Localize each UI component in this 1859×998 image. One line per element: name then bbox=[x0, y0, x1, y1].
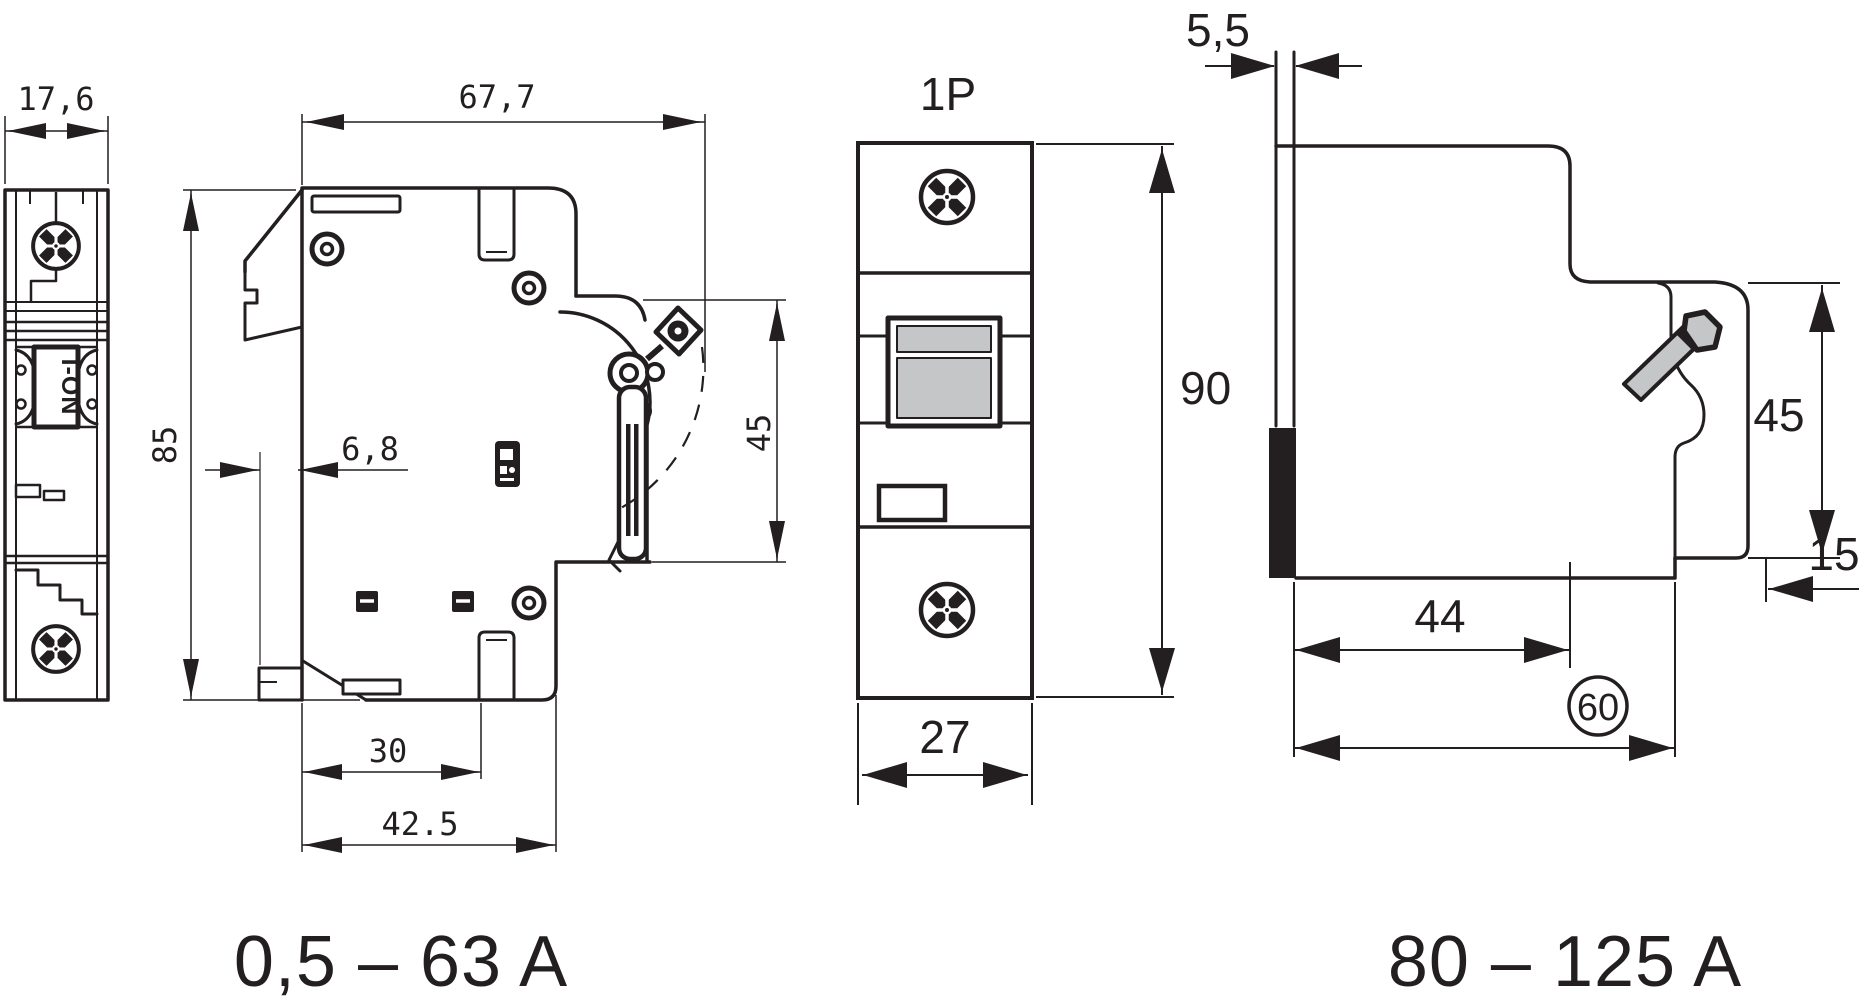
switch-label: I-ON bbox=[56, 359, 84, 416]
pole-count-label: 1P bbox=[920, 68, 976, 120]
rivet-icon bbox=[514, 588, 544, 618]
vent-holes bbox=[356, 591, 474, 612]
dim-label-42-5: 42.5 bbox=[381, 805, 458, 843]
dim-label-90: 90 bbox=[1180, 362, 1231, 414]
dim-label-27: 27 bbox=[919, 711, 970, 763]
bottom-slot bbox=[343, 680, 400, 694]
rating-window bbox=[879, 486, 945, 520]
phillips-screw-icon bbox=[33, 626, 79, 672]
dimension-front-height-45-large: 45 bbox=[1748, 283, 1840, 558]
toggle-mechanism bbox=[609, 308, 703, 571]
lever-shaft bbox=[619, 387, 646, 559]
din-clip-black bbox=[1269, 428, 1296, 578]
dim-label-85: 85 bbox=[146, 426, 184, 465]
dim-label-5-5: 5,5 bbox=[1186, 4, 1250, 56]
mcb-dimension-diagram: 17,6 I-ON bbox=[0, 0, 1859, 998]
dimension-height-90: 90 bbox=[1036, 144, 1231, 697]
dim-label-67-7: 67,7 bbox=[458, 78, 535, 116]
dim-label-15: 15 bbox=[1808, 528, 1859, 580]
din-rail-tab bbox=[1276, 52, 1294, 426]
din-hook-top bbox=[245, 272, 302, 340]
dim-label-30: 30 bbox=[369, 732, 408, 770]
dimension-width-27: 27 bbox=[858, 703, 1032, 805]
rivet-icon bbox=[514, 273, 544, 303]
current-range-large: 80 – 125 A bbox=[1388, 922, 1742, 998]
dim-label-6-8: 6,8 bbox=[341, 430, 399, 468]
dimension-step-15: 15 bbox=[1766, 528, 1859, 602]
dim-label-60: 60 bbox=[1577, 687, 1619, 729]
dim-label-45-large: 45 bbox=[1753, 389, 1804, 441]
dimension-tab-5-5: 5,5 bbox=[1186, 4, 1362, 66]
phillips-screw-icon bbox=[921, 171, 973, 223]
technical-drawing-sheet: 17,6 I-ON bbox=[0, 0, 1859, 998]
front-view-narrow: 17,6 I-ON bbox=[5, 80, 108, 700]
phillips-screw-icon bbox=[921, 584, 973, 636]
din-clip-foot bbox=[259, 668, 302, 700]
toggle-upper bbox=[897, 326, 991, 352]
dimension-top-depth-44: 44 bbox=[1294, 562, 1570, 757]
side-view-large-breaker: 5,5 45 15 bbox=[1186, 4, 1859, 998]
dimension-bottom-depth-60: 60 bbox=[1294, 582, 1675, 757]
front-view-1p: 1P 27 90 bbox=[858, 68, 1231, 805]
dimension-42-5: 42.5 bbox=[302, 695, 556, 852]
dim-label-44: 44 bbox=[1414, 590, 1465, 642]
dim-label-17-6: 17,6 bbox=[17, 80, 94, 118]
phillips-screw-icon bbox=[33, 223, 79, 269]
dimension-width-17-6: 17,6 bbox=[5, 80, 108, 184]
toggle-lower bbox=[897, 358, 991, 418]
rivet-icon bbox=[312, 234, 342, 264]
top-slot bbox=[312, 196, 400, 212]
current-range-small: 0,5 – 63 A bbox=[234, 922, 568, 998]
dim-label-45-small: 45 bbox=[740, 414, 778, 453]
side-view-small-breaker: 67,7 85 6,8 45 bbox=[146, 78, 786, 998]
logo-mark bbox=[495, 441, 520, 487]
